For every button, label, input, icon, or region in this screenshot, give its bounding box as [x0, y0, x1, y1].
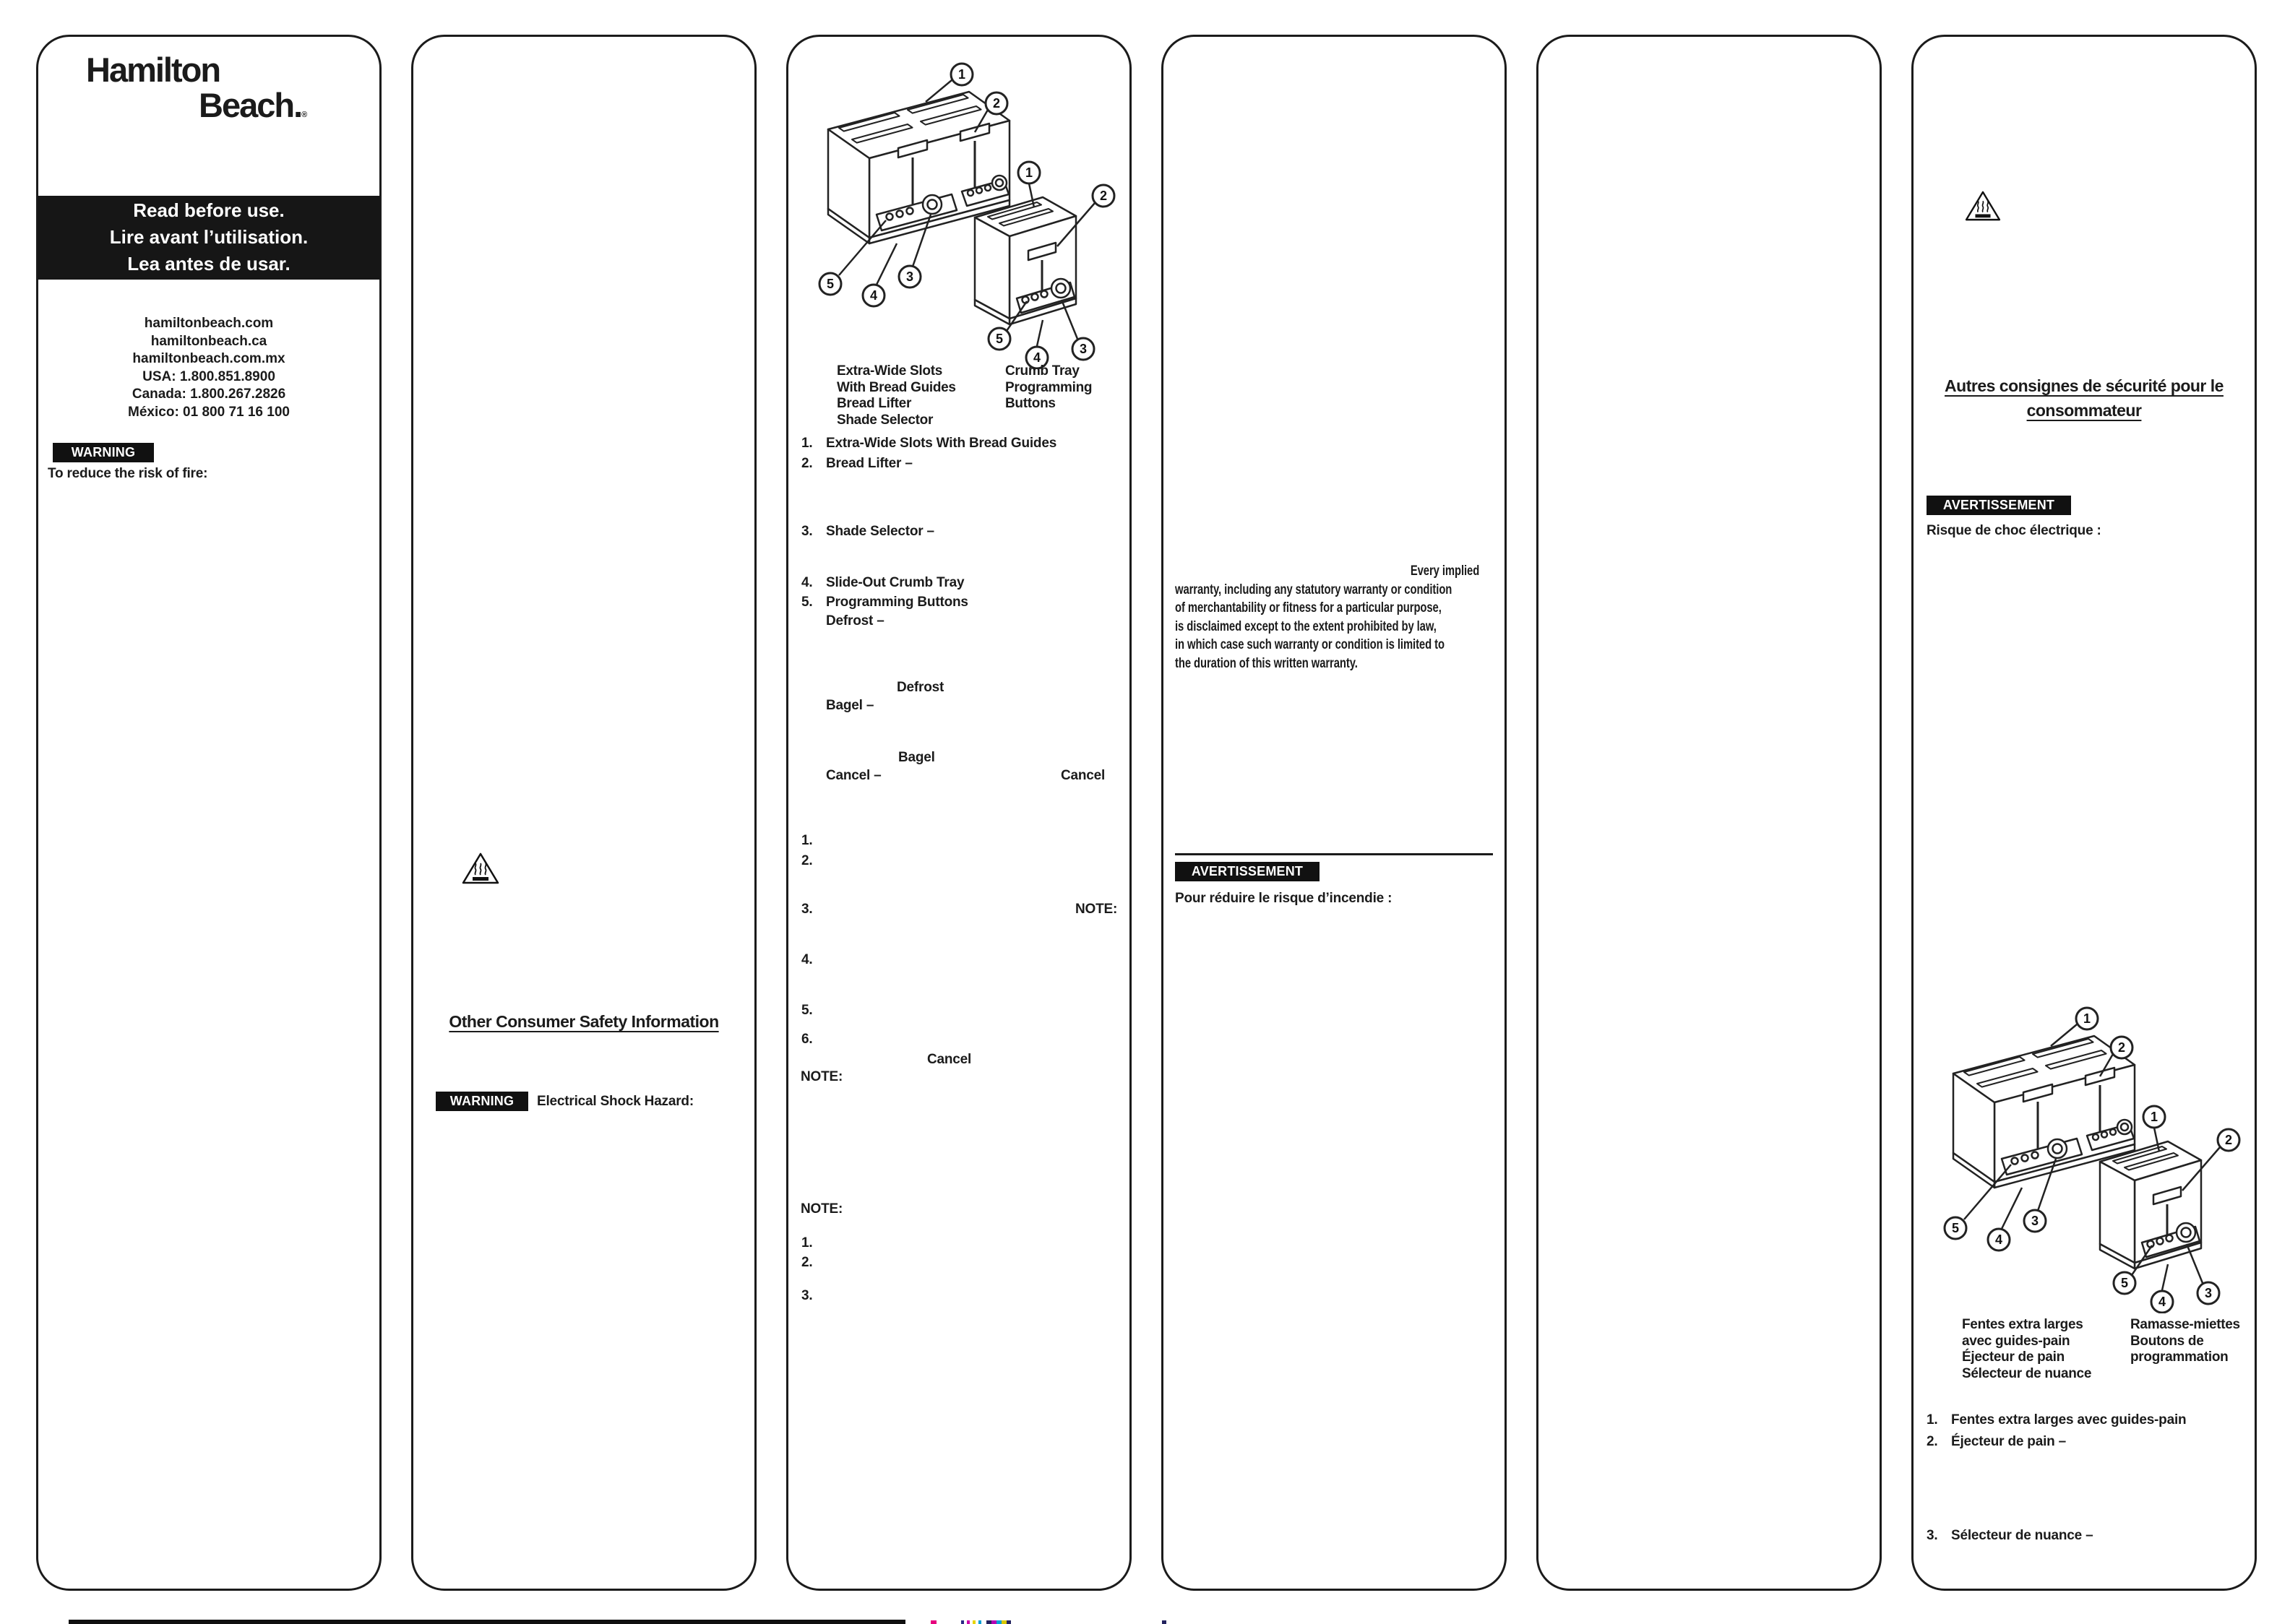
- callout-2: 2: [993, 96, 1000, 111]
- note-label-3: NOTE:: [801, 1201, 843, 1217]
- banner-line-en: Read before use.: [38, 197, 380, 224]
- phone-usa: USA: 1.800.851.8900: [38, 368, 379, 386]
- callout-3b: 3: [1080, 342, 1087, 356]
- step-3: 3.: [801, 902, 812, 917]
- cancel-word-2: Cancel: [927, 1052, 971, 1068]
- parts-item-1: 1.Extra-Wide Slots With Bread Guides: [801, 436, 1056, 452]
- parts-item-5: 5.Programming Buttons: [801, 595, 968, 610]
- callout-4: 4: [870, 288, 877, 303]
- panel-cover: Hamilton Beach.® Read before use. Lire a…: [36, 35, 382, 1591]
- callout-5: 5: [827, 277, 834, 291]
- panel-blank: [1536, 35, 1882, 1591]
- warning-badge: WARNING: [53, 443, 154, 462]
- banner-line-es: Lea antes de usar.: [38, 251, 380, 277]
- hot-surface-icon: [461, 852, 500, 885]
- print-registration-mark: [973, 1620, 976, 1624]
- callout-3b: 3: [2205, 1286, 2212, 1300]
- logo-line-hamilton: Hamilton: [86, 50, 306, 90]
- parts-item-3-fr: 3.Sélecteur de nuance –: [1927, 1528, 2093, 1544]
- note-label-2: NOTE:: [801, 1069, 843, 1085]
- warranty-paragraph: Every implied warranty, including any st…: [1175, 562, 1479, 673]
- defrost-word: Defrost: [897, 680, 944, 696]
- callout-2b: 2: [2225, 1133, 2232, 1147]
- cancel-word: Cancel: [1061, 768, 1105, 784]
- callout-3: 3: [2031, 1214, 2039, 1228]
- print-registration-mark: [931, 1620, 937, 1624]
- parts-item-2-fr: 2.Éjecteur de pain –: [1927, 1434, 2066, 1450]
- callout-1b: 1: [2151, 1110, 2158, 1124]
- callout-2b: 2: [1100, 189, 1107, 203]
- section-divider: [1175, 853, 1493, 855]
- cancel-item: Cancel –: [826, 768, 882, 784]
- safety-heading-fr: Autres consignes de sécurité pour le con…: [1914, 376, 2255, 420]
- panel-parts-en: 1 2 3 4 5 1 2 3 4 5 Extra-Wide Slots Wit…: [786, 35, 1132, 1591]
- callout-1: 1: [2083, 1011, 2091, 1026]
- callout-3: 3: [906, 269, 913, 284]
- end-step-1: 1.: [801, 1235, 812, 1251]
- panel-safety-en: Other Consumer Safety Information WARNIN…: [411, 35, 757, 1591]
- warning-badge: WARNING: [436, 1092, 528, 1111]
- avertissement-badge: AVERTISSEMENT: [1927, 496, 2071, 515]
- toaster-parts-diagram-fr: 1 2 3 4 5 1 2 3 4 5: [1914, 1003, 2255, 1313]
- avertissement-badge: AVERTISSEMENT: [1175, 862, 1320, 881]
- step-1: 1.: [801, 833, 812, 849]
- phone-canada: Canada: 1.800.267.2826: [38, 386, 379, 404]
- banner-line-fr: Lire avant l’utilisation.: [38, 224, 380, 251]
- note-label: NOTE:: [1075, 902, 1117, 917]
- bagel-item: Bagel –: [826, 698, 874, 714]
- fire-risk-text: To reduce the risk of fire:: [48, 466, 207, 482]
- parts-item-4: 4.Slide-Out Crumb Tray: [801, 575, 964, 591]
- print-registration-mark: [1162, 1620, 1166, 1624]
- print-color-bar: [991, 1620, 997, 1624]
- diagram-label-left-fr: Fentes extra larges avec guides-pain Éje…: [1962, 1317, 2091, 1382]
- step-5: 5.: [801, 1003, 812, 1019]
- callout-4b: 4: [2158, 1295, 2166, 1309]
- print-color-bar: [986, 1620, 991, 1624]
- registered-trademark-symbol: ®: [301, 111, 306, 119]
- print-registration-mark: [967, 1620, 970, 1624]
- step-2: 2.: [801, 853, 812, 869]
- print-registration-mark: [961, 1620, 964, 1624]
- logo-line-beach: Beach.®: [199, 85, 306, 125]
- bagel-word: Bagel: [898, 750, 935, 766]
- hot-surface-icon: [1964, 190, 2002, 222]
- callout-5: 5: [1952, 1221, 1959, 1235]
- panel-safety-fr: Autres consignes de sécurité pour le con…: [1911, 35, 2257, 1591]
- website-ca: hamiltonbeach.ca: [38, 333, 379, 351]
- defrost-item: Defrost –: [826, 613, 884, 629]
- diagram-label-left: Extra-Wide Slots With Bread Guides Bread…: [837, 363, 956, 428]
- parts-item-1-fr: 1.Fentes extra larges avec guides-pain: [1927, 1412, 2186, 1428]
- step-6: 6.: [801, 1032, 812, 1048]
- panel-warranty: Every implied warranty, including any st…: [1161, 35, 1507, 1591]
- fire-risk-text-fr: Pour réduire le risque d’incendie :: [1175, 891, 1392, 907]
- callout-5b: 5: [2121, 1276, 2128, 1290]
- read-before-use-banner: Read before use. Lire avant l’utilisatio…: [38, 196, 380, 280]
- callout-2: 2: [2118, 1040, 2125, 1055]
- callout-4: 4: [1995, 1232, 2002, 1247]
- step-4: 4.: [801, 952, 812, 968]
- print-color-bar: [1002, 1620, 1007, 1624]
- print-color-bar: [1007, 1620, 1011, 1624]
- safety-heading-en: Other Consumer Safety Information: [413, 1012, 754, 1032]
- parts-item-3: 3.Shade Selector –: [801, 524, 934, 540]
- phone-mexico: México: 01 800 71 16 100: [38, 404, 379, 422]
- print-registration-mark: [978, 1620, 981, 1624]
- end-step-3: 3.: [801, 1288, 812, 1304]
- diagram-label-right: Crumb Tray Programming Buttons: [1005, 363, 1092, 413]
- callout-1: 1: [958, 67, 965, 82]
- callout-1b: 1: [1025, 165, 1033, 180]
- print-fold-bar: [69, 1620, 905, 1624]
- print-color-bar: [997, 1620, 1002, 1624]
- toaster-parts-diagram: 1 2 3 4 5 1 2 3 4 5: [788, 59, 1129, 369]
- website-mx: hamiltonbeach.com.mx: [38, 350, 379, 368]
- website-us: hamiltonbeach.com: [38, 315, 379, 333]
- shock-risk-text-fr: Risque de choc électrique :: [1927, 523, 2101, 539]
- callout-4b: 4: [1033, 350, 1041, 365]
- end-step-2: 2.: [801, 1255, 812, 1271]
- callout-5b: 5: [996, 332, 1003, 346]
- parts-item-2: 2.Bread Lifter –: [801, 456, 913, 472]
- contact-info: hamiltonbeach.com hamiltonbeach.ca hamil…: [38, 315, 379, 421]
- hamilton-beach-logo: Hamilton Beach.®: [86, 50, 306, 125]
- diagram-label-right-fr: Ramasse-miettes Boutons de programmation: [2130, 1317, 2240, 1366]
- electrical-shock-text: Electrical Shock Hazard:: [537, 1094, 694, 1110]
